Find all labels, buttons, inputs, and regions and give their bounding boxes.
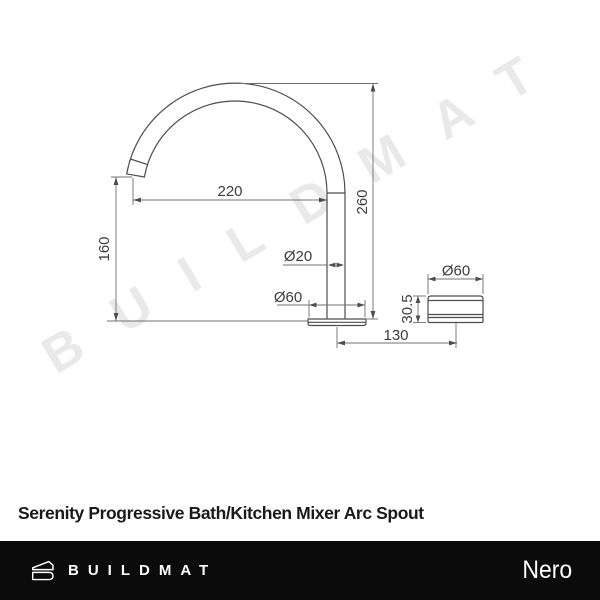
dim-305-label: 30.5 <box>399 294 416 323</box>
spec-sheet-page: BUILDMAT 220 <box>0 0 600 600</box>
front-view-spout <box>127 83 366 325</box>
dim-o60-arrow-right <box>358 303 366 308</box>
dim-base-diameter-front: Ø60 <box>274 289 365 318</box>
dim-o60-arrow-left <box>309 303 317 308</box>
dim-spout-reach: 220 <box>133 178 327 205</box>
spout-tip-band-line <box>130 159 147 165</box>
dim-220-arrow-left <box>133 198 141 203</box>
dim-305-arrow-bottom <box>416 316 421 323</box>
dim-220-arrow-right <box>319 198 327 203</box>
dim-160-arrow-bottom <box>114 313 119 321</box>
dim-130-arrow-left <box>337 341 345 346</box>
dim-o60-side-arrow-right <box>476 277 484 282</box>
dim-160-arrow-top <box>114 177 119 185</box>
nero-logo: Nero <box>522 556 572 585</box>
dim-o20-label: Ø20 <box>284 248 312 265</box>
dim-260-label: 260 <box>354 189 371 214</box>
buildmat-logo-icon <box>30 560 57 582</box>
dim-base-diameter-side: Ø60 <box>428 263 483 295</box>
dim-o60-side-arrow-left <box>428 277 436 282</box>
dim-o60-side-label: Ø60 <box>442 263 470 280</box>
dim-pipe-diameter: Ø20 <box>283 248 344 267</box>
dim-o60-label: Ø60 <box>274 289 302 306</box>
side-view-base <box>428 296 483 323</box>
dim-o20-arrow-right <box>337 263 345 268</box>
dim-305-arrow-top <box>416 296 421 303</box>
dim-160-label: 160 <box>96 236 113 261</box>
dim-260-arrow-top <box>371 84 376 92</box>
dim-260-arrow-bottom <box>371 311 376 319</box>
dim-total-height: 260 <box>240 84 378 320</box>
dim-o20-arrow-left <box>328 263 336 268</box>
technical-drawing: 220 160 260 Ø20 <box>0 0 600 480</box>
dim-220-label: 220 <box>217 183 242 200</box>
footer-bar: BUILDMAT Nero <box>0 541 600 600</box>
dim-130-label: 130 <box>383 327 408 344</box>
spout-tube-outline <box>127 83 345 193</box>
dim-base-height-side: 30.5 <box>399 294 426 323</box>
dim-base-offset: 130 <box>337 323 457 349</box>
buildmat-brand-name: BUILDMAT <box>68 562 217 579</box>
buildmat-brand: BUILDMAT <box>30 560 217 582</box>
product-title: Serenity Progressive Bath/Kitchen Mixer … <box>18 503 578 524</box>
